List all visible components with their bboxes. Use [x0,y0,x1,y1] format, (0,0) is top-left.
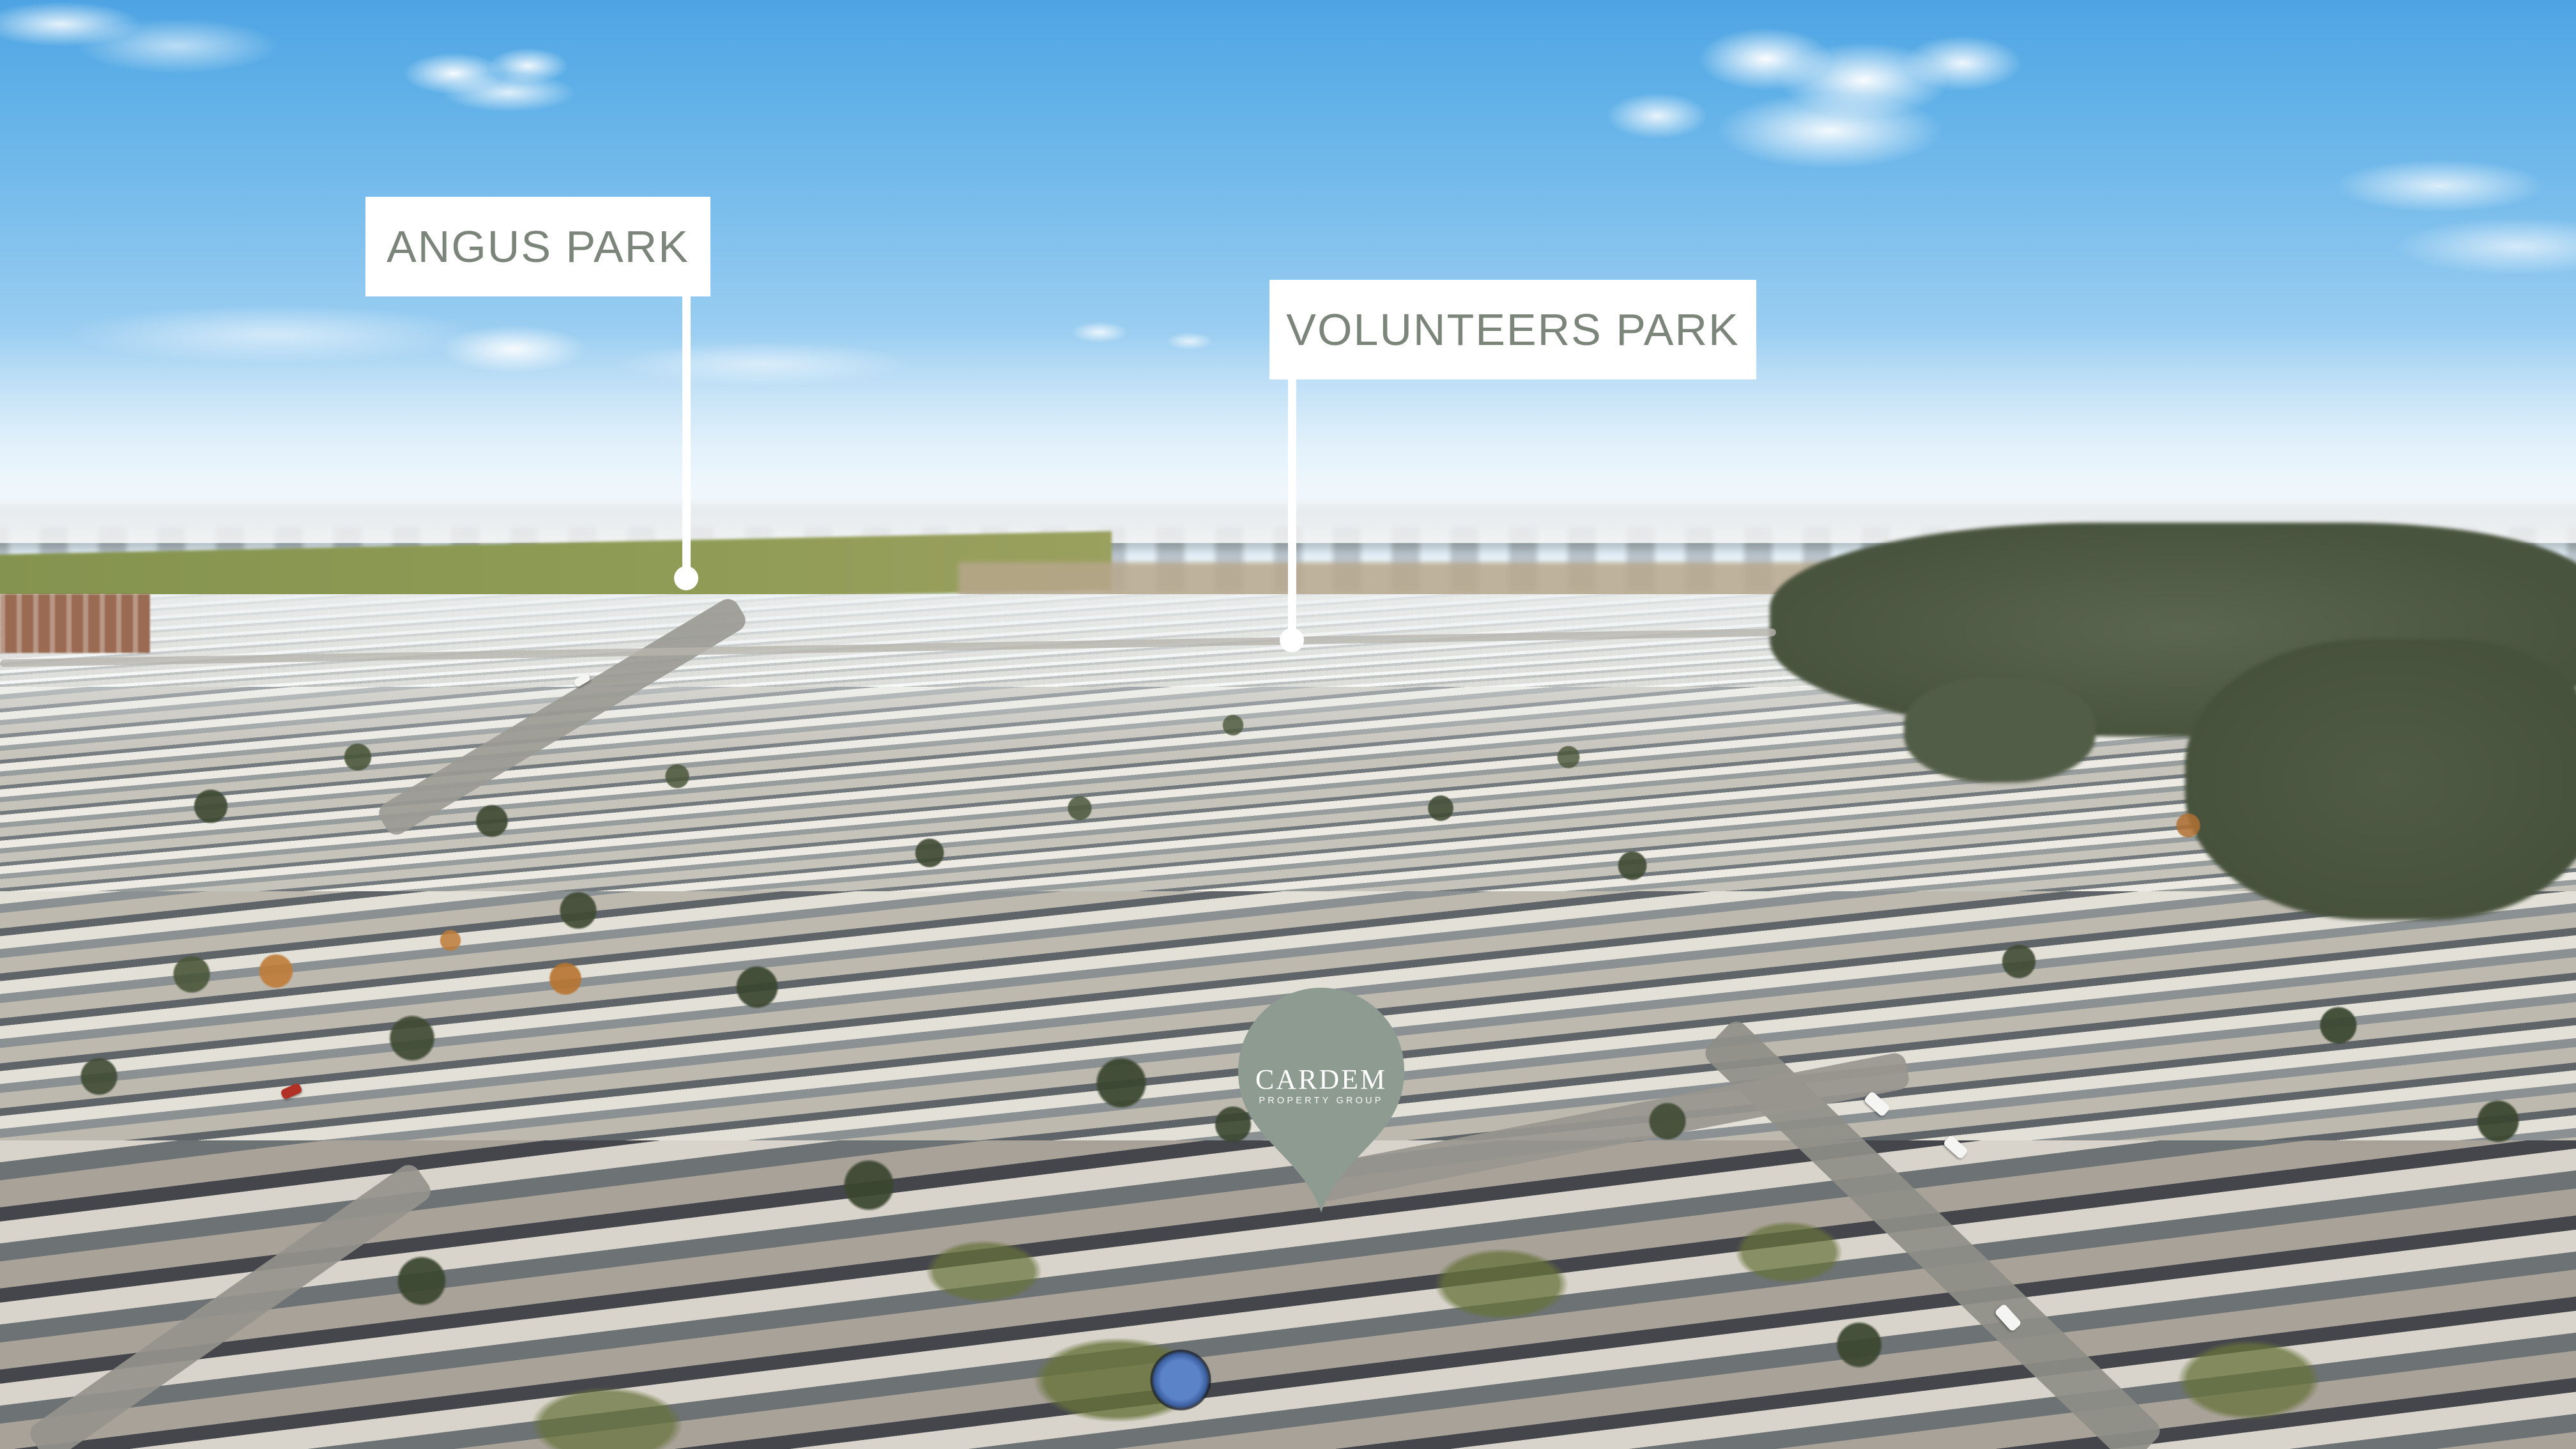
aerial-photo-scene: ANGUS PARK VOLUNTEERS PARK CARDEM PROPER… [0,0,2576,1449]
marker-dot-angus [674,566,698,590]
brand-name: CARDEM [1255,1064,1387,1095]
brand-pin: CARDEM PROPERTY GROUP [1238,988,1404,1213]
park-label-volunteers: VOLUNTEERS PARK [1269,280,1756,379]
trampoline [1150,1349,1211,1411]
brand-tagline: PROPERTY GROUP [1259,1096,1383,1106]
marker-dot-volunteers [1280,628,1304,652]
connector-line-volunteers [1288,378,1296,641]
park-label-angus: ANGUS PARK [365,197,710,296]
park-label-volunteers-text: VOLUNTEERS PARK [1286,304,1739,355]
connector-line-angus [682,295,691,578]
park-label-angus-text: ANGUS PARK [387,221,689,272]
